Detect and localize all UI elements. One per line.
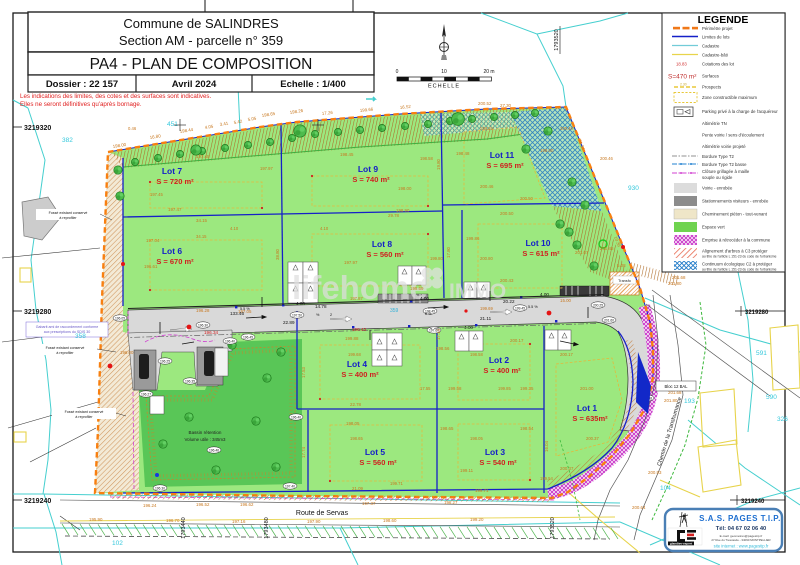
- svg-text:Voirie - enrobée: Voirie - enrobée: [702, 186, 733, 191]
- svg-text:S = 740 m²: S = 740 m²: [352, 175, 390, 184]
- svg-text:196.30: 196.30: [198, 323, 208, 327]
- svg-text:3219240: 3219240: [741, 499, 765, 505]
- svg-text:4.00: 4.00: [464, 325, 473, 330]
- svg-text:Lot 8: Lot 8: [372, 239, 393, 249]
- svg-text:PA4 - PLAN DE COMPOSITION: PA4 - PLAN DE COMPOSITION: [90, 56, 313, 73]
- svg-text:10: 10: [441, 69, 447, 75]
- svg-text:5.5 %: 5.5 %: [240, 307, 250, 311]
- svg-text:S = 670 m²: S = 670 m²: [156, 257, 194, 266]
- svg-text:199.88: 199.88: [345, 336, 359, 341]
- svg-text:193: 193: [684, 398, 695, 405]
- svg-text:4.10: 4.10: [320, 226, 329, 231]
- svg-text:Pente voirie / sens d'écouleme: Pente voirie / sens d'écoulement: [702, 133, 765, 138]
- svg-text:196.45: 196.45: [243, 335, 253, 339]
- svg-text:Surfaces: Surfaces: [702, 74, 719, 79]
- svg-text:S = 400 m²: S = 400 m²: [341, 370, 379, 379]
- svg-text:Lot 11: Lot 11: [490, 150, 515, 160]
- svg-text:201.07: 201.07: [575, 250, 589, 255]
- svg-text:Altimétrie TN: Altimétrie TN: [702, 121, 727, 126]
- svg-text:197.47: 197.47: [168, 207, 182, 212]
- svg-text:201.68: 201.68: [672, 275, 686, 280]
- svg-text:1793520: 1793520: [554, 29, 560, 50]
- svg-text:Cadastre-bâti: Cadastre-bâti: [702, 53, 728, 58]
- svg-text:au titre de l'article L 151-23: au titre de l'article L 151-23 du code d…: [702, 268, 777, 272]
- svg-text:199.11: 199.11: [460, 468, 474, 473]
- svg-text:198.56: 198.56: [436, 346, 450, 351]
- svg-text:34.15: 34.15: [196, 218, 208, 223]
- svg-text:198.48: 198.48: [456, 151, 470, 156]
- svg-text:199.68: 199.68: [348, 352, 361, 357]
- svg-text:2.30: 2.30: [680, 83, 687, 87]
- svg-text:Lot 10: Lot 10: [525, 238, 550, 248]
- svg-text:Volume utile : 345m3: Volume utile : 345m3: [184, 437, 226, 442]
- svg-text:17.14: 17.14: [436, 328, 441, 340]
- svg-text:Lot 3: Lot 3: [485, 447, 506, 457]
- svg-text:à reprofiler: à reprofiler: [59, 216, 77, 220]
- svg-text:196.70: 196.70: [166, 518, 180, 523]
- svg-text:201.00: 201.00: [580, 386, 594, 391]
- svg-text:LEGENDE: LEGENDE: [698, 14, 749, 26]
- svg-text:102: 102: [112, 540, 123, 547]
- svg-text:à reprofiler: à reprofiler: [56, 351, 74, 355]
- svg-text:200.50: 200.50: [520, 196, 533, 201]
- svg-text:1793480: 1793480: [264, 517, 270, 538]
- svg-text:20 m: 20 m: [483, 69, 494, 75]
- svg-text:14.78: 14.78: [315, 304, 327, 309]
- svg-text:S = 540 m²: S = 540 m²: [479, 458, 517, 467]
- svg-text:197.37: 197.37: [362, 501, 376, 506]
- svg-text:200.17: 200.17: [510, 338, 524, 343]
- svg-text:Emprise à rétrocéder à la comm: Emprise à rétrocéder à la commune: [702, 238, 771, 243]
- svg-text:201.80: 201.80: [668, 281, 682, 286]
- svg-text:196.00: 196.00: [120, 350, 134, 355]
- svg-text:3219240: 3219240: [24, 498, 51, 505]
- svg-text:198.65: 198.65: [440, 426, 454, 431]
- svg-text:198.45: 198.45: [340, 152, 354, 157]
- svg-text:201.60: 201.60: [604, 318, 614, 322]
- svg-text:Avril 2024: Avril 2024: [172, 79, 217, 90]
- svg-text:22.89: 22.89: [283, 320, 295, 325]
- svg-text:382: 382: [62, 137, 73, 144]
- svg-text:199.85: 199.85: [498, 386, 511, 391]
- svg-text:200.64: 200.64: [632, 505, 646, 510]
- svg-text:133.46: 133.46: [230, 311, 244, 316]
- svg-text:Bassin rétention: Bassin rétention: [189, 430, 222, 435]
- svg-text:Cadastre: Cadastre: [702, 44, 720, 49]
- svg-text:200.25: 200.25: [593, 303, 603, 307]
- svg-text:199.71: 199.71: [390, 481, 403, 486]
- svg-text:359: 359: [390, 308, 399, 314]
- svg-text:198.58: 198.58: [420, 156, 433, 161]
- svg-text:200.50: 200.50: [500, 211, 514, 216]
- svg-text:S=470 m²: S=470 m²: [668, 74, 697, 81]
- svg-text:200.43: 200.43: [500, 278, 514, 283]
- svg-text:21.09: 21.09: [352, 486, 364, 491]
- svg-text:Parking privé à la charge de l: Parking privé à la charge de l'acquéreur: [702, 109, 778, 114]
- svg-text:S.A.S. PAGES T.I.P.: S.A.S. PAGES T.I.P.: [699, 514, 781, 523]
- svg-text:Espace vert: Espace vert: [702, 225, 725, 230]
- svg-text:326: 326: [777, 416, 788, 423]
- svg-text:glandiev-expert: glandiev-expert: [670, 542, 692, 546]
- svg-text:197.90: 197.90: [307, 519, 321, 524]
- svg-text:22.78: 22.78: [350, 402, 362, 407]
- svg-text:196.62: 196.62: [240, 502, 254, 507]
- svg-text:196.25: 196.25: [160, 359, 170, 363]
- svg-text:17.80: 17.80: [446, 246, 451, 258]
- svg-text:3219320: 3219320: [24, 125, 51, 132]
- svg-text:451: 451: [167, 121, 178, 128]
- svg-text:S = 720 m²: S = 720 m²: [156, 177, 194, 186]
- svg-text:198.65: 198.65: [350, 436, 363, 441]
- svg-text:1793440: 1793440: [181, 517, 187, 538]
- svg-text:196.52: 196.52: [196, 502, 210, 507]
- svg-text:199.86: 199.86: [466, 236, 480, 241]
- svg-text:S = 560 m²: S = 560 m²: [359, 458, 397, 467]
- svg-text:196.35: 196.35: [185, 379, 195, 383]
- svg-text:196.27: 196.27: [141, 392, 151, 396]
- svg-text:196.61: 196.61: [144, 264, 158, 269]
- svg-text:196.30: 196.30: [155, 486, 165, 490]
- svg-text:358: 358: [75, 333, 86, 340]
- svg-text:S = 400 m²: S = 400 m²: [483, 366, 521, 375]
- svg-text:196.27: 196.27: [444, 500, 458, 505]
- svg-text:18.83: 18.83: [676, 62, 687, 67]
- svg-text:Cotations des lot: Cotations des lot: [702, 62, 735, 67]
- svg-text:Fossé existant conservé: Fossé existant conservé: [65, 410, 104, 414]
- svg-text:197.97: 197.97: [344, 260, 358, 265]
- svg-text:Limites de lots: Limites de lots: [702, 35, 729, 40]
- svg-text:Lot 7: Lot 7: [162, 166, 183, 176]
- svg-text:200.46: 200.46: [600, 156, 613, 161]
- svg-text:196.40: 196.40: [225, 339, 235, 343]
- svg-text:Fossé existant conservé: Fossé existant conservé: [46, 346, 85, 350]
- svg-text:Fossé existant conservé: Fossé existant conservé: [49, 211, 88, 215]
- svg-text:200.80: 200.80: [480, 256, 493, 261]
- svg-text:S = 615 m²: S = 615 m²: [522, 249, 560, 258]
- svg-text:Altimétrie voirie projeté: Altimétrie voirie projeté: [702, 144, 746, 149]
- svg-text:Continuum écologique C2 à prot: Continuum écologique C2 à protéger: [702, 262, 773, 267]
- svg-text:104: 104: [660, 485, 671, 492]
- svg-text:198.58: 198.58: [470, 352, 483, 357]
- svg-text:196.05: 196.05: [115, 316, 125, 320]
- svg-text:197.87: 197.87: [350, 296, 363, 301]
- svg-text:Alignement d'arbres à C3 proté: Alignement d'arbres à C3 protéger: [702, 249, 768, 254]
- svg-text:S = 695 m²: S = 695 m²: [486, 161, 524, 170]
- svg-text:199.35: 199.35: [520, 386, 534, 391]
- svg-text:Zone constructible maximum: Zone constructible maximum: [702, 95, 757, 100]
- svg-text:198.43: 198.43: [352, 327, 366, 332]
- svg-text:198.60: 198.60: [383, 518, 397, 523]
- svg-text:197.97: 197.97: [260, 166, 273, 171]
- svg-text:200.37: 200.37: [586, 436, 599, 441]
- svg-text:IMMO: IMMO: [449, 280, 506, 303]
- svg-text:S = 560 m²: S = 560 m²: [366, 250, 404, 259]
- svg-text:Elles ne seront définitives qu: Elles ne seront définitives qu'après bor…: [20, 101, 142, 108]
- svg-text:S = 635m²: S = 635m²: [572, 414, 608, 423]
- svg-text:Bloc 12 BAL: Bloc 12 BAL: [664, 384, 688, 389]
- svg-text:198.54: 198.54: [520, 426, 534, 431]
- svg-text:Prospects: Prospects: [702, 85, 721, 90]
- svg-text:Commune de SALINDRES: Commune de SALINDRES: [123, 16, 279, 31]
- svg-text:200.48: 200.48: [560, 126, 573, 131]
- svg-text:Périmètre projet: Périmètre projet: [702, 26, 733, 31]
- svg-text:199.69: 199.69: [410, 286, 424, 291]
- svg-text:Tél: 04 67 02 06 40: Tél: 04 67 02 06 40: [716, 526, 767, 532]
- svg-text:Lot 5: Lot 5: [365, 447, 386, 457]
- svg-text:Echelle : 1/400: Echelle : 1/400: [280, 79, 345, 90]
- svg-text:196.34: 196.34: [204, 330, 218, 335]
- svg-text:196.40: 196.40: [291, 415, 301, 419]
- svg-text:4.00: 4.00: [420, 296, 429, 301]
- svg-text:Clôture grillagée à maille: Clôture grillagée à maille: [702, 169, 750, 174]
- svg-text:19.80: 19.80: [436, 158, 441, 170]
- svg-text:Lot 9: Lot 9: [358, 164, 379, 174]
- svg-text:199.71: 199.71: [475, 488, 489, 493]
- svg-text:198.90: 198.90: [396, 208, 410, 213]
- svg-text:197.45: 197.45: [196, 154, 210, 159]
- svg-text:5.5 %: 5.5 %: [528, 305, 538, 309]
- svg-text:20.22: 20.22: [503, 299, 515, 304]
- svg-text:195.90: 195.90: [89, 517, 103, 522]
- svg-text:Lot 4: Lot 4: [347, 359, 368, 369]
- svg-text:198.05: 198.05: [470, 436, 483, 441]
- svg-text:Transfo: Transfo: [618, 279, 631, 283]
- svg-text:29.78: 29.78: [388, 213, 400, 218]
- svg-text:4.00: 4.00: [296, 301, 305, 306]
- svg-text:16.04: 16.04: [544, 440, 549, 452]
- svg-text:17.55: 17.55: [420, 386, 431, 391]
- svg-text:199.20: 199.20: [470, 517, 484, 522]
- svg-text:196.24: 196.24: [143, 503, 157, 508]
- svg-text:souple ou rigide: souple ou rigide: [702, 175, 733, 180]
- svg-text:196.46: 196.46: [209, 448, 219, 452]
- svg-text:0: 0: [396, 69, 399, 75]
- svg-text:197.40: 197.40: [285, 484, 295, 488]
- svg-text:200.37: 200.37: [560, 466, 574, 471]
- svg-text:Route de Servas: Route de Servas: [296, 510, 349, 517]
- svg-text:site internet : www.pagestip.f: site internet : www.pagestip.fr: [714, 544, 769, 549]
- svg-text:27 Rue du Trescasde - 34090 MO: 27 Rue du Trescasde - 34090 MONTPELLIER: [711, 538, 770, 542]
- svg-text:198.05: 198.05: [346, 421, 360, 426]
- svg-text:Lot 1: Lot 1: [577, 403, 598, 413]
- svg-text:6 %: 6 %: [425, 312, 432, 316]
- svg-text:Bordure Type T2 basse: Bordure Type T2 basse: [702, 162, 747, 167]
- svg-text:4.10: 4.10: [230, 226, 239, 231]
- svg-text:à reprofiler: à reprofiler: [75, 415, 93, 419]
- svg-text:17.74: 17.74: [301, 446, 306, 458]
- svg-text:197.04: 197.04: [146, 238, 160, 243]
- svg-text:200.93: 200.93: [648, 470, 662, 475]
- svg-text:4.00: 4.00: [540, 292, 549, 297]
- svg-text:199.58: 199.58: [448, 386, 462, 391]
- svg-text:Les indications des limites, d: Les indications des limites, des cotes e…: [20, 93, 212, 100]
- svg-text:15.00: 15.00: [560, 298, 572, 303]
- svg-text:Lot 6: Lot 6: [162, 246, 183, 256]
- svg-text:197.16: 197.16: [232, 519, 246, 524]
- svg-text:Section AM - parcelle n° 359: Section AM - parcelle n° 359: [119, 33, 283, 48]
- svg-text:Gabarit ami de raccordement co: Gabarit ami de raccordement conforme: [36, 325, 99, 329]
- svg-text:199.54: 199.54: [540, 476, 553, 481]
- svg-text:au titre de l'article L 151-23: au titre de l'article L 151-23 du code d…: [702, 255, 777, 259]
- svg-text:ECHELLE: ECHELLE: [428, 84, 460, 90]
- svg-text:200.46: 200.46: [480, 184, 494, 189]
- svg-text:Bordure Type T2: Bordure Type T2: [702, 154, 734, 159]
- svg-text:1793520: 1793520: [550, 517, 556, 538]
- svg-text:200.48: 200.48: [600, 246, 614, 251]
- svg-text:198.00: 198.00: [398, 186, 412, 191]
- svg-text:199.58: 199.58: [480, 126, 493, 131]
- svg-text:17.53: 17.53: [301, 366, 306, 378]
- svg-text:Stationnements visiteurs - enr: Stationnements visiteurs - enrobée: [702, 199, 769, 204]
- svg-text:590: 590: [766, 394, 777, 401]
- svg-text:196.28: 196.28: [196, 308, 210, 313]
- svg-text:199.45: 199.45: [515, 306, 525, 310]
- svg-text:930: 930: [628, 185, 639, 192]
- svg-text:200.52: 200.52: [478, 101, 492, 106]
- svg-text:199.69: 199.69: [480, 306, 493, 311]
- svg-text:591: 591: [756, 350, 767, 357]
- svg-text:27.30: 27.30: [500, 103, 512, 108]
- svg-text:3219280: 3219280: [745, 310, 769, 316]
- svg-text:34.15: 34.15: [196, 234, 207, 239]
- svg-text:198.00: 198.00: [540, 148, 554, 153]
- svg-text:197.50: 197.50: [292, 313, 302, 317]
- svg-text:0.46: 0.46: [128, 126, 137, 131]
- svg-text:38.80: 38.80: [275, 248, 280, 260]
- svg-text:3219280: 3219280: [24, 309, 51, 316]
- svg-text:Cheminement piéton - tout-vena: Cheminement piéton - tout-venant: [702, 212, 768, 217]
- svg-text:5.08: 5.08: [617, 263, 626, 268]
- svg-text:Dossier : 22 157: Dossier : 22 157: [46, 79, 118, 90]
- svg-text:200.17: 200.17: [560, 352, 573, 357]
- svg-text:21.11: 21.11: [480, 316, 492, 321]
- svg-text:Lot 2: Lot 2: [489, 355, 510, 365]
- svg-text:197.45: 197.45: [150, 192, 163, 197]
- svg-text:199.80: 199.80: [430, 256, 443, 261]
